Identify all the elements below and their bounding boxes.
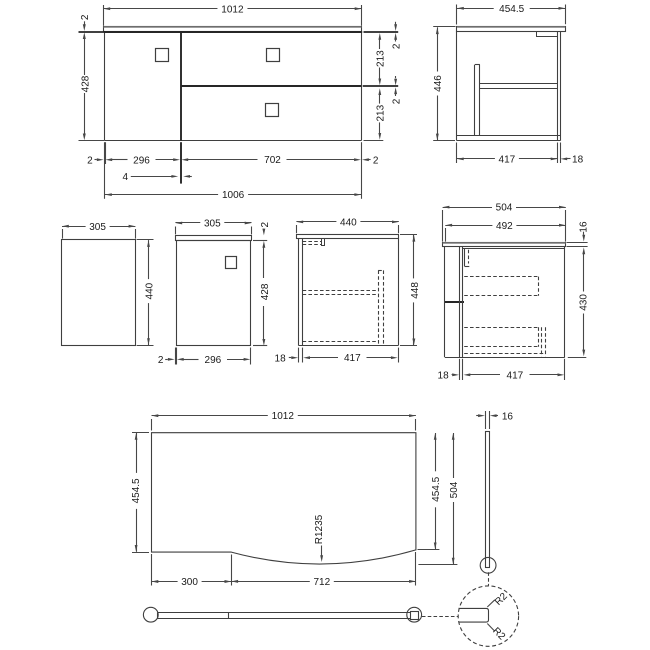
svg-text:1012: 1012 [221,4,244,15]
svg-text:18: 18 [275,353,287,364]
svg-text:1012: 1012 [272,411,295,422]
svg-text:2: 2 [158,355,164,366]
svg-text:18: 18 [572,155,584,166]
svg-text:16: 16 [502,411,514,422]
svg-text:492: 492 [496,221,513,232]
svg-text:504: 504 [496,203,513,214]
svg-text:454.5: 454.5 [431,476,442,501]
svg-text:305: 305 [89,222,106,233]
svg-text:1006: 1006 [222,190,245,201]
svg-text:2: 2 [87,156,93,167]
svg-text:428: 428 [260,283,271,300]
svg-text:454.5: 454.5 [499,4,524,15]
svg-text:296: 296 [133,156,150,167]
svg-text:440: 440 [144,282,155,299]
svg-text:213: 213 [376,50,387,67]
svg-text:R1235: R1235 [314,514,325,544]
svg-text:448: 448 [410,282,421,299]
svg-text:446: 446 [433,75,444,92]
svg-text:440: 440 [340,218,357,229]
svg-text:712: 712 [313,577,330,588]
svg-text:2: 2 [80,14,91,20]
svg-text:417: 417 [344,353,361,364]
svg-text:2: 2 [373,156,379,167]
svg-text:16: 16 [579,221,590,233]
svg-text:430: 430 [579,294,590,311]
svg-text:2: 2 [260,221,271,227]
svg-text:702: 702 [264,155,281,166]
svg-text:18: 18 [438,371,450,382]
svg-text:428: 428 [81,75,92,92]
svg-text:2: 2 [392,98,403,104]
svg-text:300: 300 [181,577,198,588]
svg-text:454.5: 454.5 [131,478,142,503]
svg-text:213: 213 [376,104,387,121]
svg-text:4: 4 [123,172,129,183]
svg-text:296: 296 [205,355,222,366]
svg-text:504: 504 [449,481,460,498]
svg-text:417: 417 [499,155,516,166]
svg-text:417: 417 [507,371,524,382]
svg-text:2: 2 [391,43,402,49]
svg-text:305: 305 [204,219,221,230]
